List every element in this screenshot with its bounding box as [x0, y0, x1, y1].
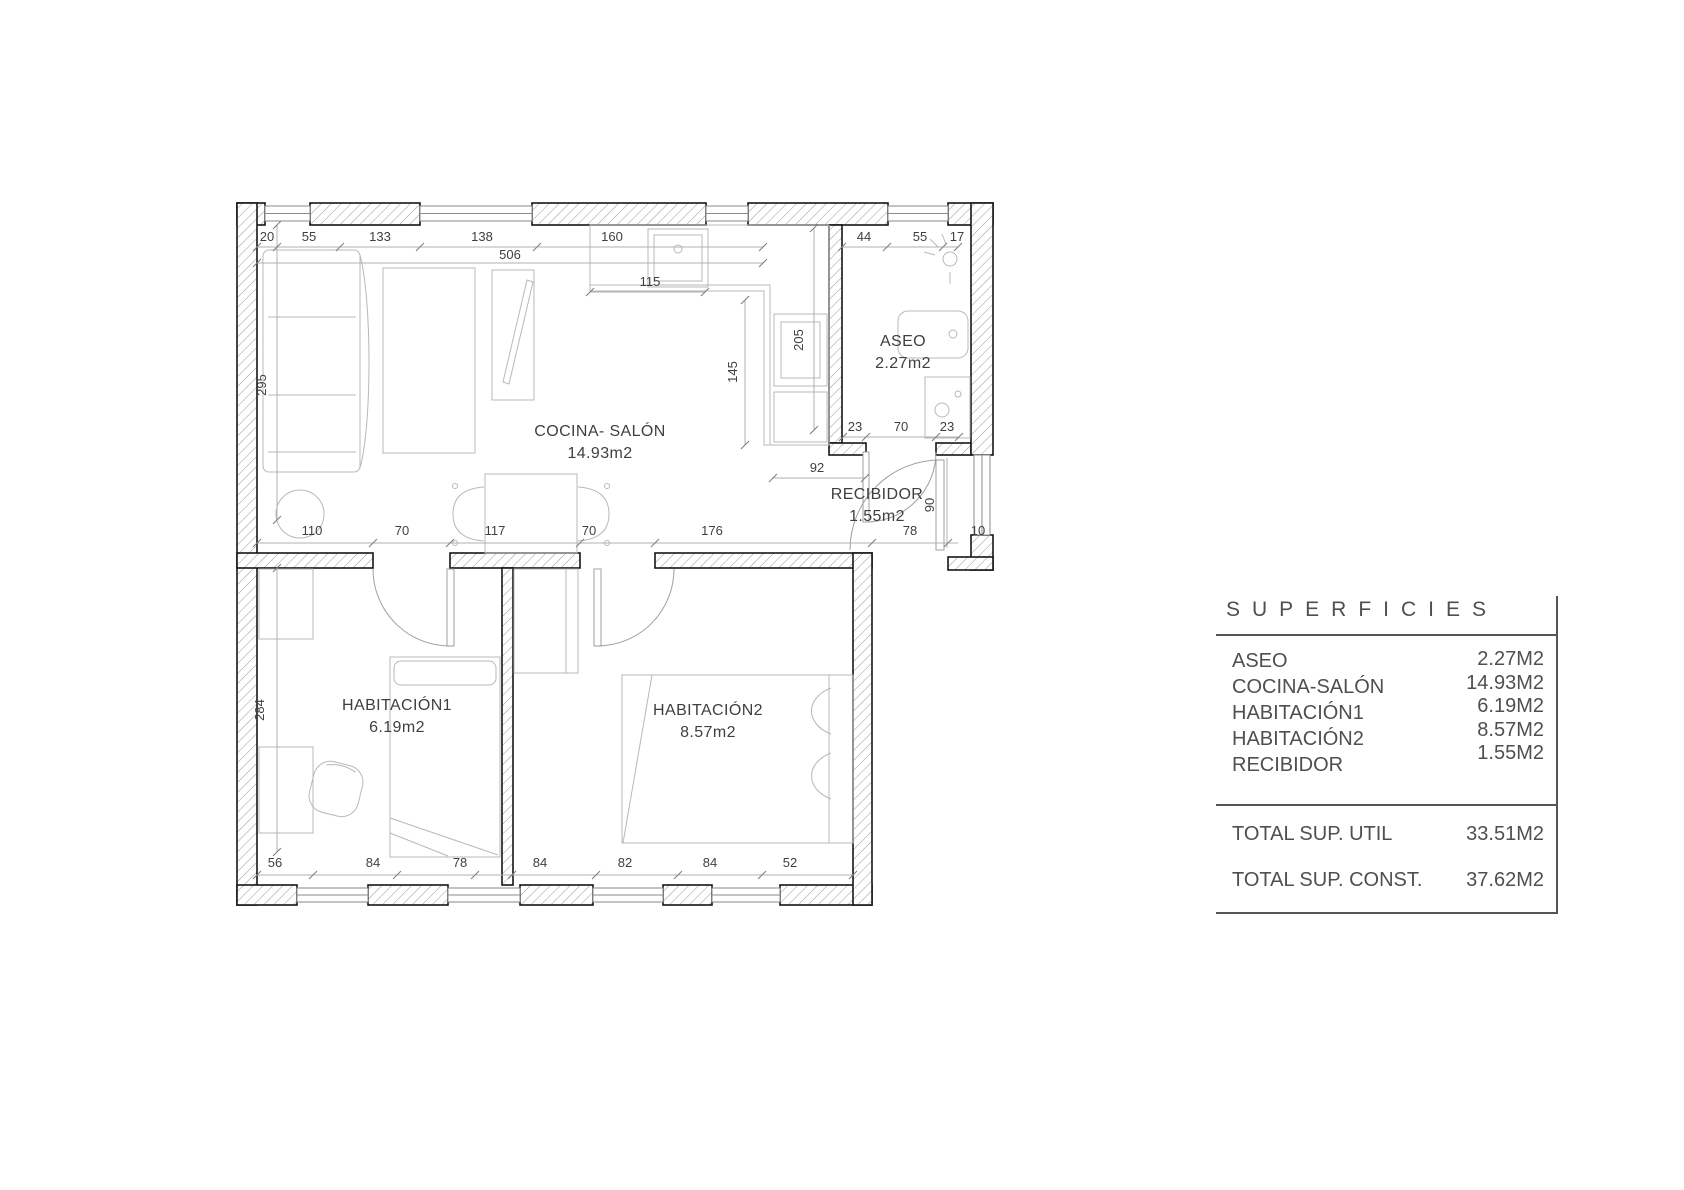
bed-hab1: [390, 657, 500, 857]
dim-label: 160: [601, 229, 623, 244]
wall: [663, 885, 712, 905]
dim-label: 70: [582, 523, 596, 538]
wall: [829, 225, 842, 443]
room-name: HABITACIÓN1: [342, 695, 452, 714]
dim-label: 115: [640, 274, 661, 289]
wall: [829, 443, 866, 455]
window-icon: [297, 888, 368, 902]
sofa: [263, 250, 369, 472]
dim-label: 55: [913, 229, 927, 244]
closet-hab1: [259, 569, 313, 639]
tv-unit: [492, 270, 534, 400]
dim-label: 70: [395, 523, 409, 538]
window-icon: [712, 888, 780, 902]
wall: [655, 553, 872, 568]
dim-label: 176: [701, 523, 723, 538]
dim-label: 84: [533, 855, 547, 870]
dim-label: 110: [302, 523, 323, 538]
dim-label: 295: [254, 374, 269, 396]
dim-label: 84: [366, 855, 380, 870]
floor-plan-page: 20 55 133 138 506 160 44 55 17 295 115 2…: [0, 0, 1684, 1190]
dim-label: 84: [703, 855, 717, 870]
room-area: 6.19m2: [369, 719, 425, 736]
dim-label: 56: [268, 855, 282, 870]
window-icon: [448, 888, 520, 902]
dim-label: 17: [950, 229, 964, 244]
row-label: COCINA-SALÓN: [1232, 674, 1384, 700]
room-area: 1.55m2: [849, 508, 905, 525]
dim-label: 23: [848, 419, 862, 434]
dim-label: 20: [260, 229, 274, 244]
total-row: TOTAL SUP. CONST. 37.62M2: [1232, 868, 1544, 892]
wall: [971, 203, 993, 455]
dim-label: 205: [791, 329, 806, 351]
door-hab2: [594, 569, 674, 646]
wall: [502, 568, 513, 885]
room-area: 2.27m2: [875, 355, 931, 372]
total-value: 37.62M2: [1466, 868, 1544, 892]
dim-label: 23: [940, 419, 954, 434]
window-icon: [420, 206, 532, 221]
row-value: 2.27M2: [1466, 648, 1544, 672]
dim-label: 90: [922, 498, 937, 512]
row-value: 6.19M2: [1466, 695, 1544, 719]
floor-plan-drawing: 20 55 133 138 506 160 44 55 17 295 115 2…: [0, 0, 1684, 1190]
total-label: TOTAL SUP. UTIL: [1232, 822, 1392, 846]
wall: [368, 885, 448, 905]
total-label: TOTAL SUP. CONST.: [1232, 868, 1422, 892]
row-label: ASEO: [1232, 648, 1384, 674]
sink-faucet: [674, 245, 682, 253]
wall: [948, 557, 993, 570]
window-icon: [706, 206, 748, 221]
wall: [310, 203, 420, 225]
dim-label: 506: [499, 247, 521, 262]
dim-label: 70: [894, 419, 908, 434]
dim-label: 44: [857, 229, 871, 244]
dim-label: 284: [252, 699, 267, 721]
dim-label: 52: [783, 855, 797, 870]
dining-table: [453, 474, 610, 553]
dimension-labels: 20 55 133 138 506 160 44 55 17 295 115 2…: [252, 229, 985, 870]
wall: [520, 885, 593, 905]
row-value: 1.55M2: [1466, 742, 1544, 766]
dim-label: 133: [369, 229, 391, 244]
room-name: COCINA- SALÓN: [534, 421, 665, 440]
dim-label: 82: [618, 855, 632, 870]
superficies-table: SUPERFICIES ASEO COCINA-SALÓN HABITACIÓN…: [1216, 596, 1558, 914]
row-label: HABITACIÓN2: [1232, 726, 1384, 752]
dim-label: 92: [810, 460, 824, 475]
dim-label: 117: [485, 523, 506, 538]
dim-label: 78: [903, 523, 917, 538]
window-icon: [888, 206, 948, 221]
room-name: ASEO: [880, 333, 926, 350]
wall: [532, 203, 706, 225]
dim-label: 10: [971, 523, 985, 538]
window-icon: [593, 888, 663, 902]
superficies-totals: TOTAL SUP. UTIL 33.51M2 TOTAL SUP. CONST…: [1216, 804, 1558, 914]
superficies-title: SUPERFICIES: [1216, 596, 1558, 636]
room-area: 14.93m2: [567, 445, 632, 462]
superficies-rows: ASEO COCINA-SALÓN HABITACIÓN1 HABITACIÓN…: [1216, 636, 1558, 804]
wall: [450, 553, 580, 568]
room-name: RECIBIDOR: [831, 486, 924, 503]
dim-label: 145: [725, 361, 740, 383]
row-value: 14.93M2: [1466, 672, 1544, 696]
dim-label: 138: [471, 229, 493, 244]
rug: [383, 268, 475, 453]
room-area: 8.57m2: [680, 724, 736, 741]
wall: [936, 443, 971, 455]
wall: [853, 553, 872, 905]
dim-label: 78: [453, 855, 467, 870]
row-label: HABITACIÓN1: [1232, 700, 1384, 726]
wall: [748, 203, 888, 225]
wall: [237, 553, 373, 568]
walls: [237, 203, 993, 905]
row-value: 8.57M2: [1466, 719, 1544, 743]
total-row: TOTAL SUP. UTIL 33.51M2: [1232, 822, 1544, 846]
door-hab1: [373, 569, 454, 646]
wall: [237, 885, 297, 905]
window-icon: [265, 206, 310, 221]
row-label: RECIBIDOR: [1232, 752, 1384, 778]
bed-hab2: [622, 675, 853, 843]
dim-label: 55: [302, 229, 316, 244]
total-value: 33.51M2: [1466, 822, 1544, 846]
desk-hab1: [259, 747, 367, 833]
room-name: HABITACIÓN2: [653, 700, 763, 719]
wardrobe-hab2: [514, 569, 578, 673]
